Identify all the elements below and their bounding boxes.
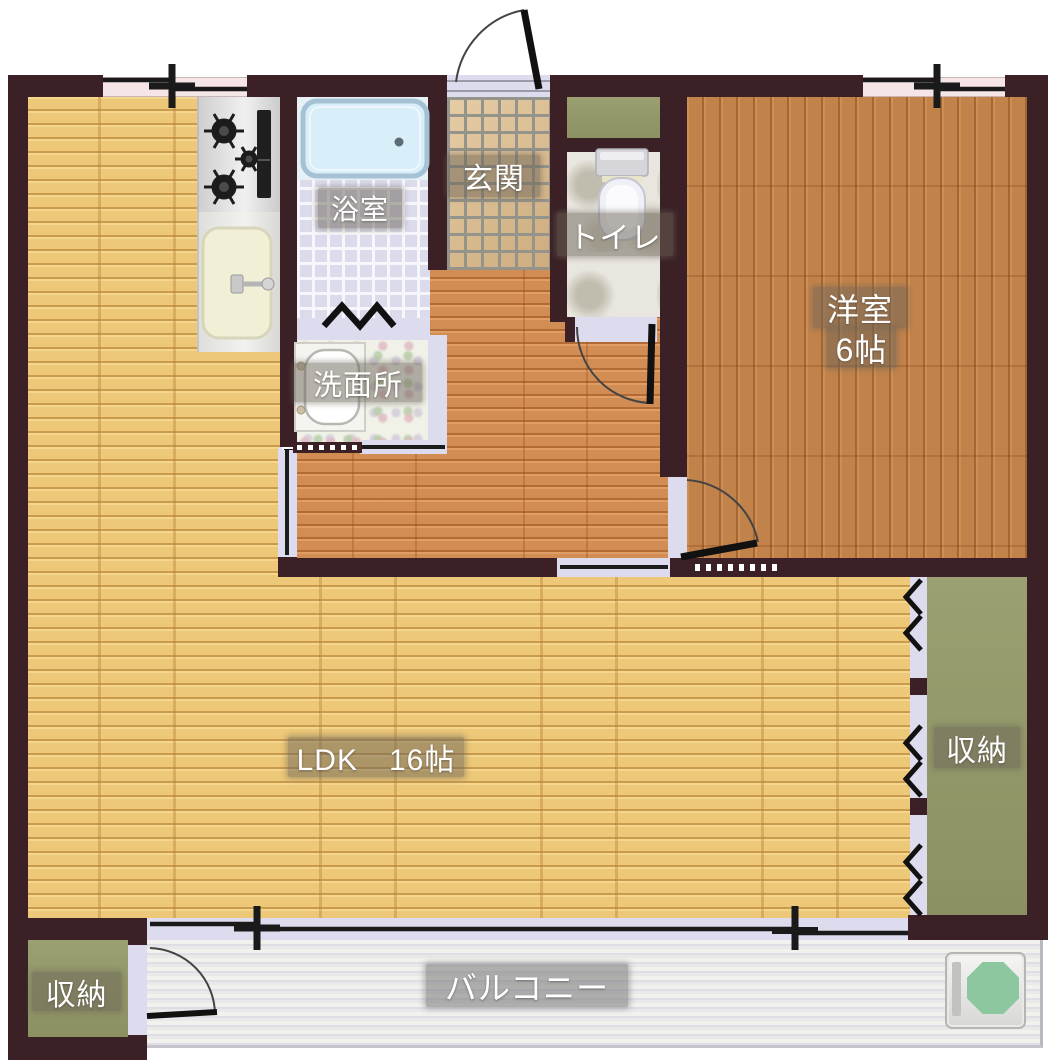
western-room-door-threshold [668, 477, 687, 558]
floor-plan: 浴室 玄関 トイレ 洗面所 洋室 6帖 LDK 16帖 収納 収納 バルコニー [0, 0, 1055, 1063]
kitchen-sink-counter [197, 212, 282, 352]
western-room-size-label: 6帖 [827, 328, 896, 368]
wall [660, 75, 687, 477]
bathroom-upper-area [297, 97, 430, 180]
wall [8, 1037, 147, 1060]
bathroom-label: 浴室 [318, 188, 402, 228]
bathroom-door-threshold [297, 318, 430, 340]
wall [128, 918, 147, 945]
storage-right-label: 収納 [934, 727, 1020, 768]
wall-dashed-marking [297, 445, 357, 450]
storage-bottom-label: 収納 [32, 972, 121, 1011]
balcony-label: バルコニー [426, 964, 628, 1007]
ac-unit-side-bar [952, 962, 961, 1016]
washroom-side-doorway [428, 335, 447, 447]
storage-right-folding-doors [910, 577, 927, 915]
wall-left [8, 75, 28, 1060]
wall [550, 75, 863, 97]
toilet-label: トイレ [557, 213, 673, 256]
toilet-door-threshold [573, 317, 657, 342]
western-room-label: 洋室 [813, 287, 907, 328]
wall [550, 75, 567, 322]
wall [128, 1035, 147, 1060]
wall [428, 75, 447, 270]
sliding-door-line [560, 565, 668, 569]
storage-bottom-doorway [128, 945, 147, 1035]
wall-right [1027, 75, 1048, 938]
shoe-cabinet [567, 97, 668, 138]
balcony-window-band [147, 918, 910, 940]
wall-dashed-marking [695, 564, 783, 571]
wall [550, 138, 668, 152]
wall [910, 798, 927, 815]
wall [565, 317, 575, 342]
wall [910, 678, 927, 695]
sliding-door-line [285, 450, 289, 555]
wall [278, 558, 557, 577]
ldk-label: LDK 16帖 [288, 737, 464, 777]
window-top-right [863, 77, 1005, 97]
entrance-door-threshold [447, 75, 550, 97]
wall [247, 75, 447, 97]
entrance-label: 玄関 [448, 155, 540, 197]
sliding-door-line [362, 445, 445, 449]
kitchen-stove-counter [197, 97, 282, 212]
window-top-left [103, 77, 247, 97]
wall [908, 915, 1048, 940]
washroom-label: 洗面所 [294, 363, 422, 402]
